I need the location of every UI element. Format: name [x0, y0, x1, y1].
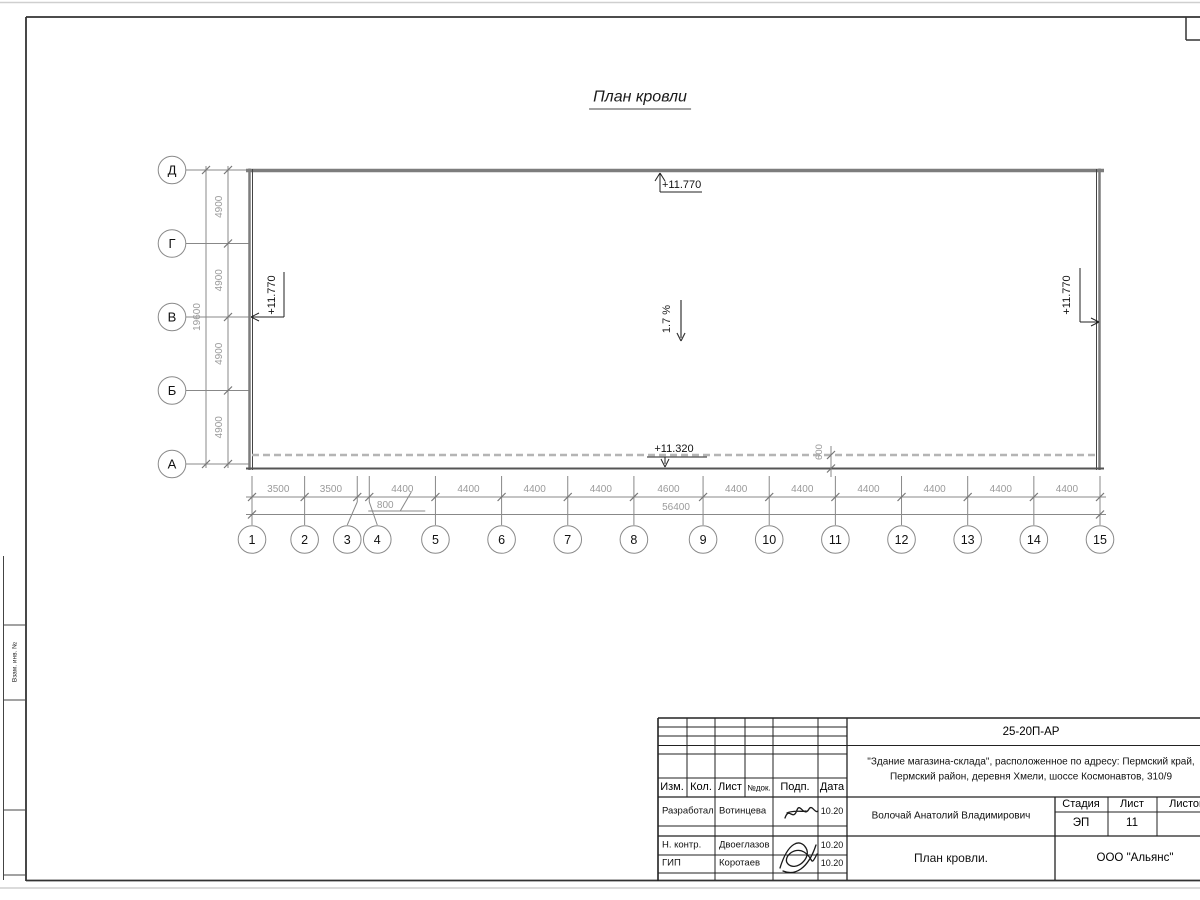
- column-axis-number: 14: [1027, 533, 1041, 547]
- h-dim-label: 4400: [524, 484, 547, 495]
- row-axis-letter: Г: [168, 236, 175, 251]
- sheets-total-header: Листов: [1169, 798, 1200, 810]
- project-address-line1: "Здание магазина-склада", расположенное …: [867, 757, 1194, 768]
- rev-col-data: Дата: [820, 781, 844, 793]
- h-dim-label: 4400: [857, 484, 880, 495]
- project-address-line2: Пермский район, деревня Хмели, шоссе Кос…: [890, 772, 1172, 783]
- column-axis-number: 6: [498, 533, 505, 547]
- drawing-title-cell: План кровли.: [914, 851, 988, 865]
- h-dim-label: 4400: [590, 484, 613, 495]
- column-axis-number: 11: [829, 533, 842, 547]
- sheet-header: Лист: [1120, 798, 1144, 810]
- row-axis-letter: Б: [168, 383, 177, 398]
- gip-date: 10.20: [821, 858, 844, 868]
- rev-col-kol: Кол.: [690, 781, 712, 793]
- column-axis-number: 13: [961, 533, 975, 547]
- rev-col-list: Лист: [718, 781, 742, 793]
- col-axis-leader: [347, 502, 357, 525]
- developer-date: 10.20: [821, 806, 844, 816]
- column-axis-number: 9: [700, 533, 707, 547]
- column-axis-number: 5: [432, 533, 439, 547]
- norm-control-name: Двоеглазов: [719, 840, 770, 851]
- column-axis-number: 12: [895, 533, 909, 547]
- stage-value: ЭП: [1073, 817, 1090, 829]
- signature-approvals: [780, 843, 817, 873]
- h-dim-label: 4600: [657, 484, 680, 495]
- column-axis-number: 2: [301, 533, 308, 547]
- elev-bottom-arrow: [661, 459, 665, 467]
- column-axis-number: 15: [1093, 533, 1107, 547]
- v-dim-label: 4900: [214, 342, 225, 365]
- role-gip: ГИП: [662, 858, 681, 869]
- sheet-number: 11: [1126, 817, 1138, 829]
- row-axis-letter: В: [168, 310, 177, 325]
- row-axis-letter: Д: [168, 163, 177, 178]
- elev-right-arrow: [1091, 322, 1099, 326]
- v-dim-total-label: 19600: [192, 303, 203, 331]
- h-dim-label: 3500: [320, 484, 343, 495]
- h-dim-label: 4400: [457, 484, 480, 495]
- elevation-bottom-label: +11.320: [654, 443, 693, 455]
- h-dim-label: 4400: [791, 484, 814, 495]
- gip-name: Коротаев: [719, 858, 760, 869]
- v-dim-label: 4900: [214, 416, 225, 439]
- chief-architect-name: Волочай Анатолий Владимирович: [872, 811, 1031, 822]
- drawing-sheet: 1960049004900490049003500350080044004400…: [0, 0, 1200, 900]
- h-dim-label: 4400: [725, 484, 748, 495]
- elev-top-arrow: [655, 173, 660, 181]
- column-axis-number: 7: [564, 533, 571, 547]
- column-axis-number: 3: [344, 533, 351, 547]
- elevation-top-label: +11.770: [662, 179, 701, 191]
- column-axis-number: 8: [630, 533, 637, 547]
- company-name: ООО "Альянс": [1097, 852, 1174, 864]
- h-dim-label: 4400: [923, 484, 946, 495]
- role-norm-control: Н. контр.: [662, 840, 701, 851]
- rev-col-izm: Изм.: [660, 781, 684, 793]
- elev-bottom-arrow: [665, 459, 669, 467]
- h-dim-label: 4400: [990, 484, 1013, 495]
- column-axis-number: 10: [762, 533, 776, 547]
- column-axis-number: 1: [249, 533, 256, 547]
- h-dim-label-800: 800: [377, 500, 394, 511]
- row-axis-letter: А: [168, 457, 177, 472]
- h-dim-label: 4400: [391, 484, 414, 495]
- doc-code: 25-20П-АР: [1003, 726, 1060, 738]
- developer-name: Вотинцева: [719, 806, 766, 817]
- signature-developer: [785, 808, 818, 818]
- stage-header: Стадия: [1062, 798, 1100, 810]
- role-developer: Разработал: [662, 806, 714, 817]
- elevation-left-label: +11.770: [266, 275, 278, 314]
- h-dim-label: 3500: [267, 484, 290, 495]
- elevation-right-label: +11.770: [1061, 275, 1073, 314]
- column-axis-number: 4: [374, 533, 381, 547]
- elev-right-arrow: [1091, 318, 1099, 322]
- v-dim-label: 4900: [214, 269, 225, 292]
- page-title: План кровли: [589, 89, 691, 110]
- rev-col-podp: Подп.: [780, 781, 809, 793]
- rev-col-ndok: №док.: [747, 784, 770, 793]
- h-dim-label: 4400: [1056, 484, 1079, 495]
- strip-label-vzam-inv: Взам. инв. №: [12, 642, 19, 682]
- norm-control-date: 10.20: [821, 840, 844, 850]
- slope-label: 1.7 %: [661, 305, 673, 333]
- eaves-offset-label: 600: [814, 444, 825, 460]
- h-dim-total-label: 56400: [662, 502, 690, 513]
- v-dim-label: 4900: [214, 195, 225, 218]
